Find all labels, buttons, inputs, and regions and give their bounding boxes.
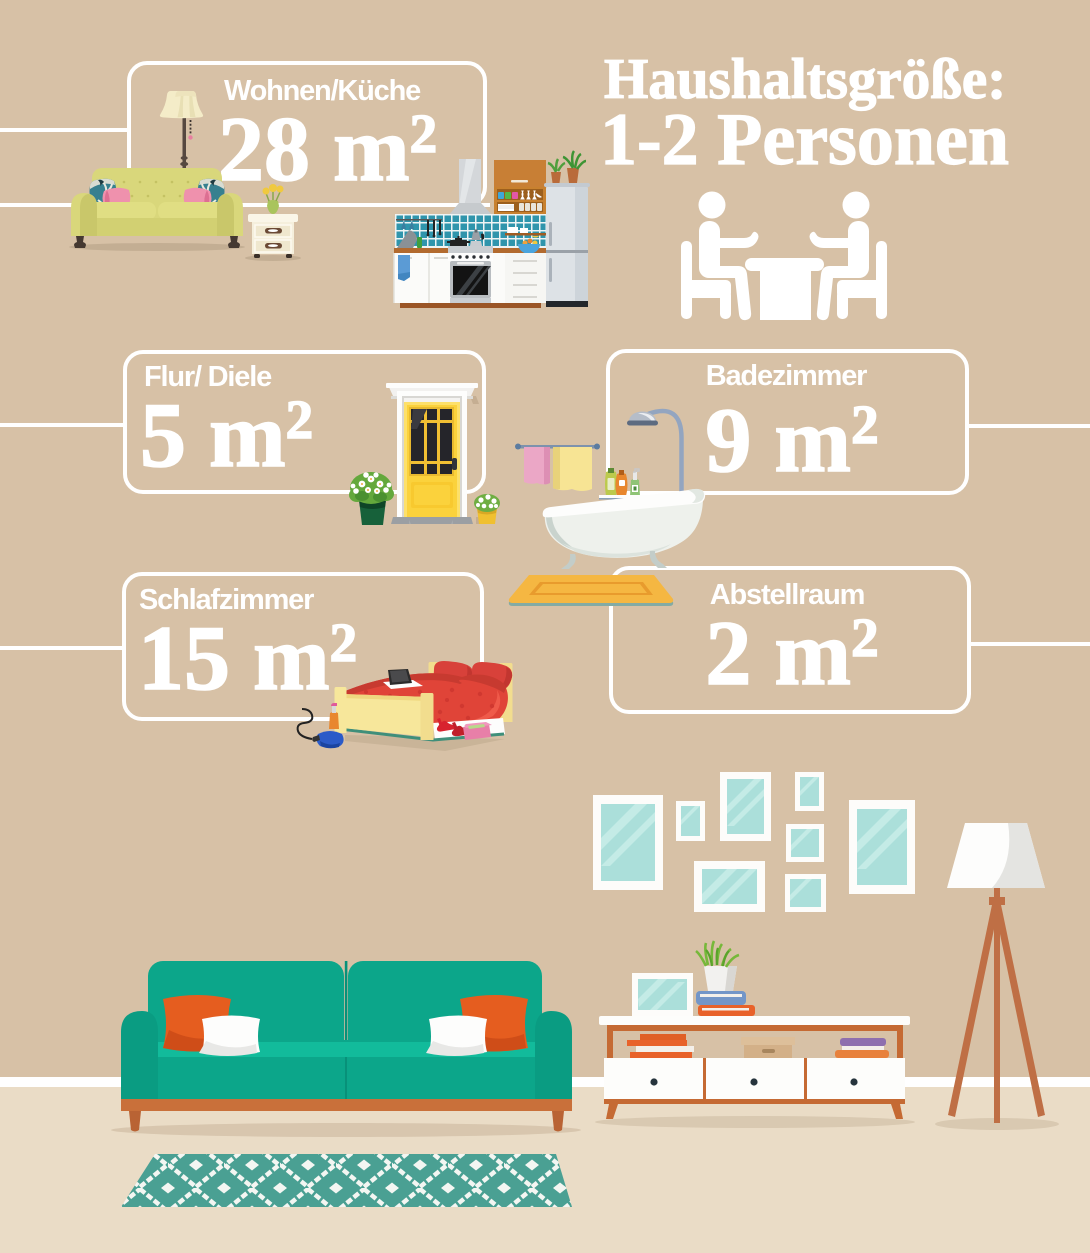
svg-text:1-2 Personen: 1-2 Personen — [600, 99, 1009, 181]
svg-text:15 m2: 15 m2 — [138, 607, 357, 709]
svg-text:Badezimmer: Badezimmer — [706, 360, 867, 392]
svg-text:28 m2: 28 m2 — [218, 98, 437, 200]
